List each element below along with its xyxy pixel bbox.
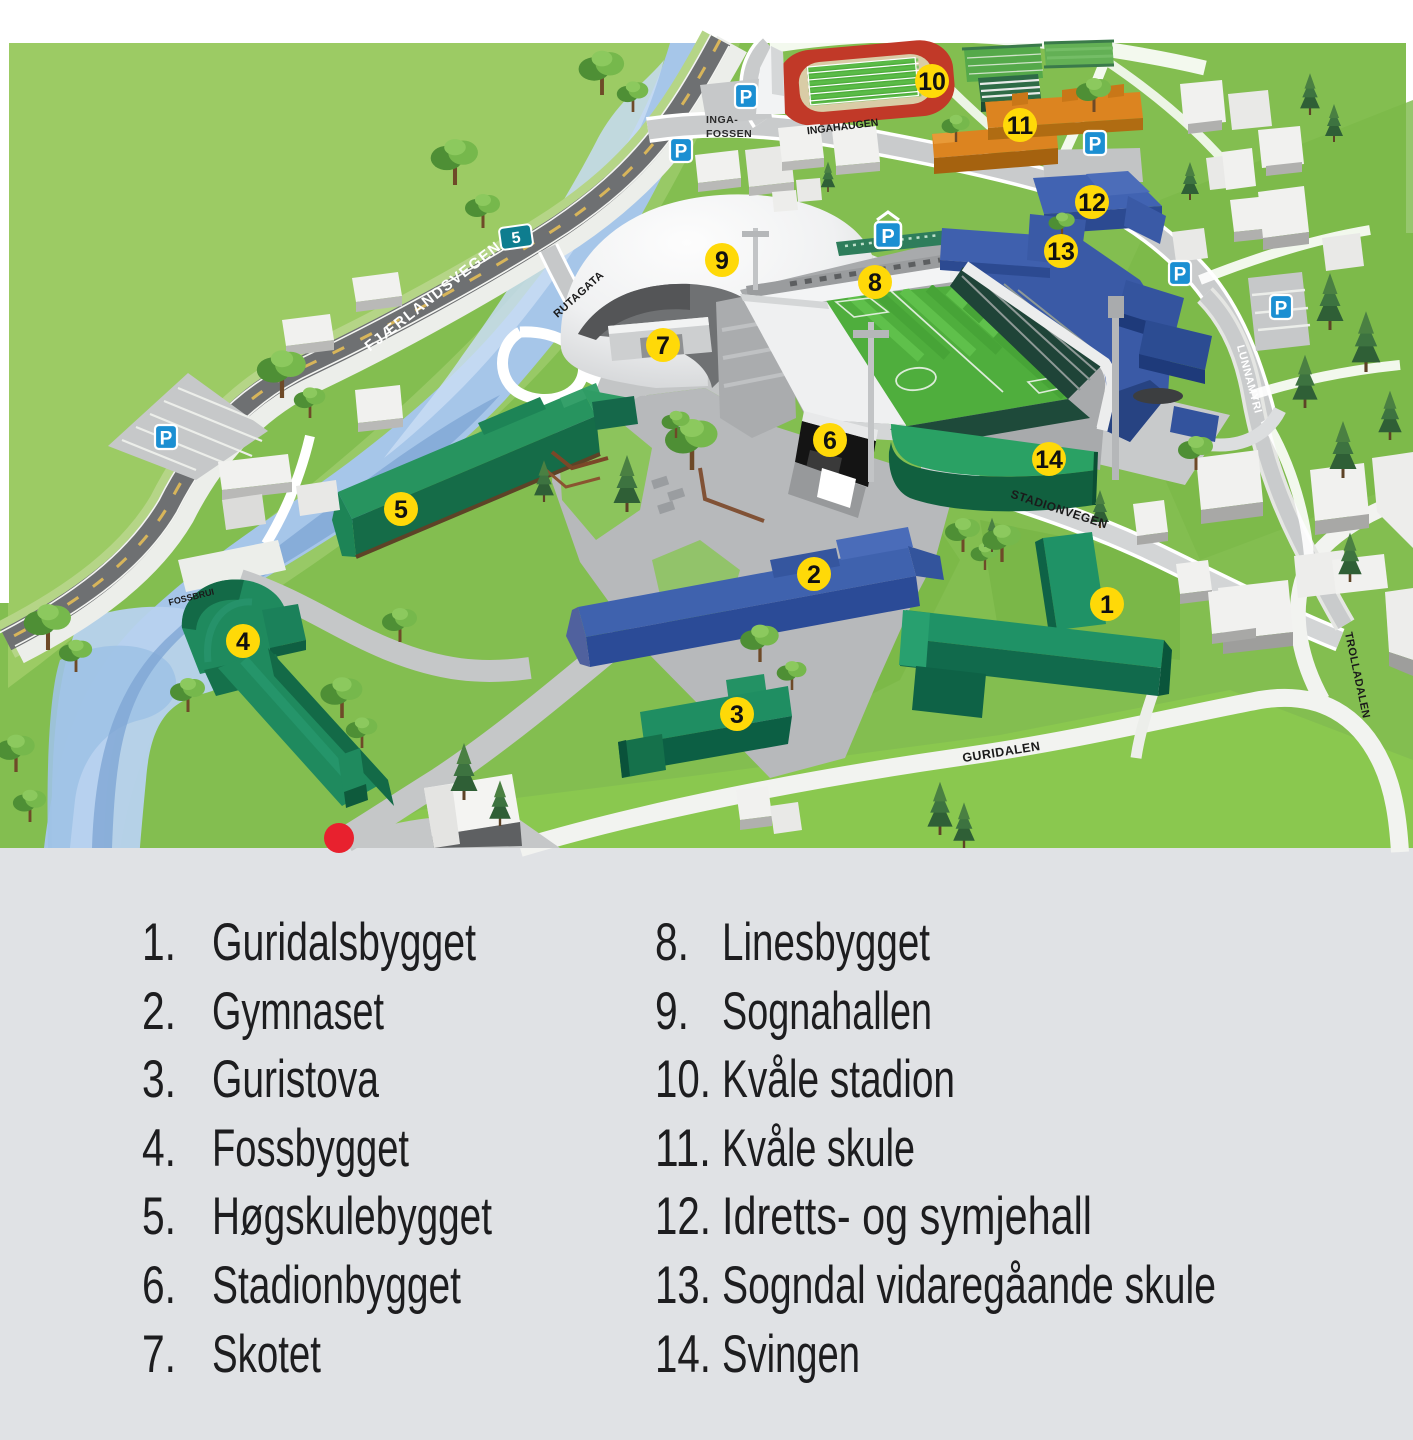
svg-text:Guristova: Guristova — [212, 1050, 379, 1109]
svg-text:Gymnaset: Gymnaset — [212, 982, 384, 1041]
svg-text:Stadionbygget: Stadionbygget — [212, 1256, 461, 1315]
svg-text:6.: 6. — [142, 1256, 176, 1315]
svg-text:2: 2 — [807, 561, 821, 589]
svg-text:10.: 10. — [655, 1050, 711, 1109]
svg-text:11.: 11. — [655, 1119, 711, 1178]
svg-text:1: 1 — [1100, 591, 1114, 619]
svg-text:Skotet: Skotet — [212, 1325, 321, 1384]
svg-text:Svingen: Svingen — [722, 1325, 860, 1384]
svg-text:5: 5 — [394, 496, 408, 524]
svg-text:9.: 9. — [655, 982, 689, 1041]
svg-text:13.: 13. — [655, 1256, 711, 1315]
svg-text:3.: 3. — [142, 1050, 176, 1109]
svg-text:P: P — [160, 429, 173, 450]
svg-text:12.: 12. — [655, 1187, 711, 1246]
svg-text:1.: 1. — [142, 913, 176, 972]
svg-text:FOSSEN: FOSSEN — [706, 128, 752, 140]
svg-text:P: P — [1275, 299, 1288, 320]
svg-text:9: 9 — [715, 247, 729, 275]
svg-text:7: 7 — [656, 332, 670, 360]
svg-text:12: 12 — [1078, 189, 1106, 217]
svg-text:Fossbygget: Fossbygget — [212, 1119, 409, 1178]
svg-text:14: 14 — [1035, 446, 1063, 474]
svg-text:Høgskulebygget: Høgskulebygget — [212, 1187, 492, 1246]
svg-text:Kvåle skule: Kvåle skule — [722, 1119, 915, 1178]
svg-text:6: 6 — [823, 427, 837, 455]
svg-text:7.: 7. — [142, 1325, 176, 1384]
svg-text:13: 13 — [1047, 238, 1075, 266]
svg-text:INGA-: INGA- — [706, 114, 738, 126]
svg-text:4.: 4. — [142, 1119, 176, 1178]
svg-text:8: 8 — [868, 269, 882, 297]
svg-text:Idretts- og symjehall: Idretts- og symjehall — [722, 1187, 1092, 1246]
svg-text:Guridalsbygget: Guridalsbygget — [212, 913, 476, 972]
svg-text:P: P — [740, 88, 753, 109]
svg-text:Linesbygget: Linesbygget — [722, 913, 930, 972]
svg-text:P: P — [1089, 135, 1102, 156]
svg-text:8.: 8. — [655, 913, 689, 972]
svg-text:Kvåle stadion: Kvåle stadion — [722, 1050, 955, 1109]
svg-text:P: P — [1174, 265, 1187, 286]
svg-text:4: 4 — [236, 628, 250, 656]
svg-text:2.: 2. — [142, 982, 176, 1041]
svg-text:14.: 14. — [655, 1325, 711, 1384]
svg-text:Sogndal vidaregåande skule: Sogndal vidaregåande skule — [722, 1256, 1216, 1315]
svg-text:3: 3 — [730, 701, 744, 729]
svg-text:P: P — [675, 142, 688, 163]
svg-text:11: 11 — [1007, 112, 1034, 140]
svg-text:Sognahallen: Sognahallen — [722, 982, 932, 1041]
svg-text:P: P — [881, 226, 894, 248]
svg-text:5.: 5. — [142, 1187, 176, 1246]
svg-text:10: 10 — [918, 68, 946, 96]
